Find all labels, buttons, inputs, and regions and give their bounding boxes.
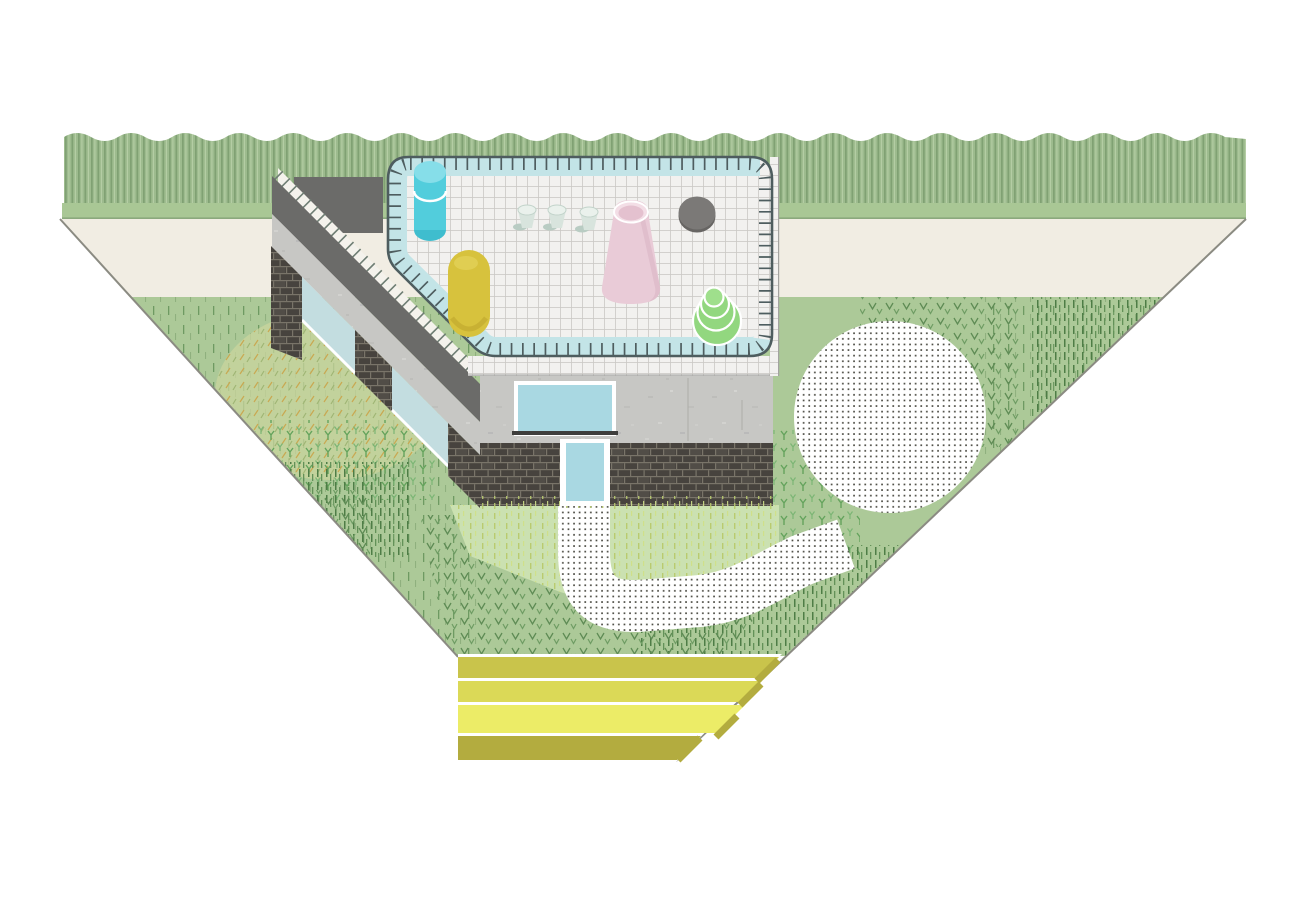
illustration-canvas (0, 0, 1300, 919)
dense-dashes-right (1030, 297, 1170, 447)
cyan-cylinder (414, 161, 446, 241)
front-window (518, 385, 612, 431)
garden-steps (458, 654, 782, 762)
gray-disc (679, 197, 716, 233)
terrace-right-deck-line (778, 157, 779, 376)
cup-top (548, 205, 566, 215)
mint-cups (513, 205, 598, 233)
cyan-cylinder-top (414, 161, 446, 183)
cup-top (518, 205, 536, 215)
front-door (566, 443, 604, 501)
gravel-circle (794, 321, 986, 513)
step-tread-3 (458, 705, 745, 733)
front-window-sill (512, 431, 618, 435)
step-tread-1 (458, 657, 779, 678)
cup-top (580, 207, 598, 217)
step-tread-2 (458, 681, 762, 702)
site-plan-drawing (0, 0, 1300, 919)
grass-fringe-over-brick (480, 496, 773, 508)
terrace-fascia-line (468, 375, 779, 376)
mound-tier-4 (705, 288, 724, 307)
step-front-face (458, 736, 701, 760)
v-marks-left (210, 490, 370, 560)
yellow-capsule-highlight (454, 256, 478, 270)
terrace-fascia-tiles (468, 356, 779, 376)
pink-cone-opening (619, 206, 644, 221)
yellow-capsule (448, 250, 490, 337)
gray-disc-top (679, 197, 716, 230)
